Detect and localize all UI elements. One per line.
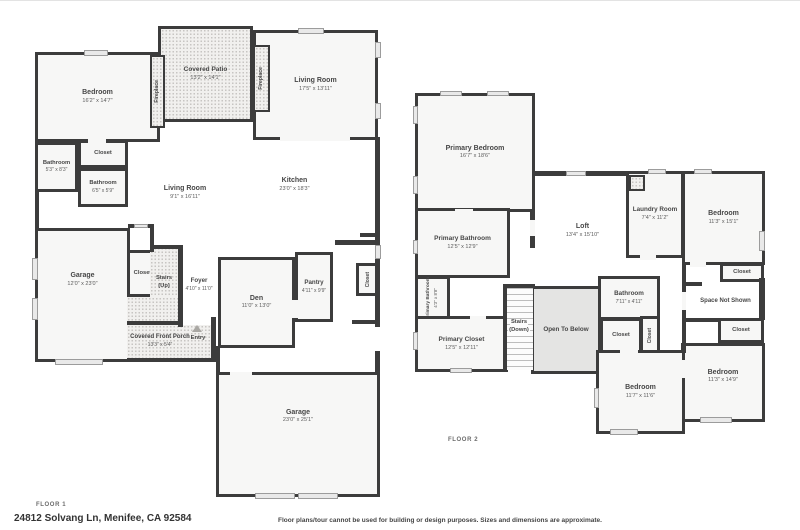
room-label: Bathroom 6'5" x 5'9" [81,171,125,204]
room-dims: 11'3" x 15'1" [709,219,739,227]
door-opening [681,360,686,378]
room-space-not-shown: Space Not Shown [688,295,763,307]
room-label: Bathroom 5'3" x 8'3" [38,145,75,189]
room-name: Bedroom [625,383,656,392]
window [298,28,324,34]
room-primary-bathroom-2: Primary Bathroom 4'3" x 8'8" [415,276,450,320]
room-label: Living Room 17'5" x 13'11" [256,33,375,137]
room-dims: 16'7" x 18'6" [460,153,490,161]
garage-door [255,493,295,499]
door-opening [455,209,473,214]
room-bedroom-se: Bedroom 11'3" x 14'9" [681,343,765,422]
wall [335,240,377,245]
room-name: Bedroom [82,88,113,97]
room-dims: 9'1" x 16'11" [170,194,200,202]
room-label: Closet [643,319,657,352]
room-label: Bedroom 11'3" x 14'9" [684,346,762,419]
room-name: Primary Bathroom [426,277,432,319]
room-label: Closet [603,321,639,351]
room-closet-ne: Closet [720,263,764,282]
room-bedroom-ne: Bedroom 11'3" x 15'1" [682,171,765,265]
room-dims: 16'2" x 14'7" [82,98,112,106]
door-opening [470,316,486,321]
room-label: Closet [721,321,761,340]
room-dims: 7'11" x 4'11" [616,299,643,306]
room-dims: 4'11" x 9'9" [302,288,326,295]
wall [684,282,702,286]
room-name: Bedroom [708,209,739,218]
room-dims: 17'5" x 13'11" [299,86,332,94]
room-name: Bathroom [89,180,116,188]
window [32,258,38,280]
wall [503,284,535,288]
room-dims: 12'5" x 12'11" [445,345,478,353]
room-name: Primary Bathroom [434,235,491,244]
wall [127,358,214,362]
room-dims: 12'0" x 23'0" [67,281,97,289]
door-opening [682,292,686,310]
window [610,429,638,435]
bottom-border-line [0,0,800,1]
room-label: Garage 12'0" x 23'0" [38,231,127,359]
room-kitchen: Kitchen 23'0" x 18'3" [252,172,337,198]
room-name: Closet [94,150,112,158]
open-to-below: Open To Below [531,286,601,374]
room-name: Laundry Room [633,206,677,215]
laundry-fixture [629,175,645,191]
room-sub: (Down) [508,327,530,335]
room-foyer: Foyer 4'10" x 11'0" [180,274,218,296]
room-label: Primary Bathroom 12'5" x 12'9" [418,211,507,275]
wall [127,321,182,325]
window [759,231,765,251]
window [487,91,509,96]
door-opening [375,327,381,351]
room-name: Garage [70,271,94,280]
room-living-room-front: Living Room 17'5" x 13'11" [253,30,378,140]
room-name: Loft [576,222,589,231]
window [700,417,732,423]
window [440,91,462,96]
room-dims: 7'4" x 11'2" [642,215,669,223]
room-dims: 4'10" x 11'0" [185,286,212,293]
door-opening [280,134,350,141]
room-name: Closet [365,272,372,287]
disclaimer-text: Floor plans/tour cannot be used for buil… [278,517,602,524]
room-name: Closet [733,269,751,277]
room-dims: 11'7" x 11'6" [626,393,655,401]
room-stairs-down: Stairs (Down) [504,316,534,338]
window [413,176,418,194]
room-label: Closet [723,266,761,279]
room-name: Space Not Shown [700,297,751,305]
wall [352,320,376,324]
window [648,169,666,174]
room-garage-rear: Garage 23'0" x 25'1" [216,372,380,497]
wall [684,318,718,322]
room-dims: 5'3" x 8'3" [46,167,68,174]
wall [35,190,39,230]
room-bathroom-f2: Bathroom 7'11" x 4'11" [598,276,660,320]
window [375,103,381,119]
room-name: Bathroom [43,160,70,168]
room-primary-bedroom: Primary Bedroom 16'7" x 18'6" [415,93,535,212]
room-label: Pantry 4'11" x 9'9" [298,255,330,319]
room-name: Primary Bedroom [446,144,505,153]
room-name: Closet [732,327,750,335]
door-opening [620,350,638,355]
room-closet-se: Closet [718,318,764,343]
room-name: Fireplace [258,67,265,90]
window [375,42,381,58]
room-garage-side: Garage 12'0" x 23'0" [35,228,130,362]
room-closet-hall-a: Closet [600,318,642,354]
room-name: Pantry [304,279,323,287]
room-closet-hall: Closet [78,140,128,168]
room-bedroom-f1: Bedroom 16'2" x 14'7" [35,52,160,142]
window [450,368,472,373]
room-name: Entry [191,335,206,343]
room-dims: 11'0" x 13'0" [242,303,272,311]
window [84,50,108,56]
room-label: Closet [81,143,125,165]
wall [216,346,220,374]
door-opening [690,262,706,267]
room-covered-patio: Covered Patio 13'2" x 14'1" [158,26,253,122]
room-label: Fireplace [255,47,268,110]
room-dims: 13'3" x 5'4" [148,342,173,349]
room-label: Garage 23'0" x 25'1" [219,375,377,494]
room-sub: (Up) [158,283,170,291]
room-label: Primary Bedroom 16'7" x 18'6" [418,96,532,209]
room-label: Fireplace [152,57,163,126]
room-bathroom-1: Bathroom 5'3" x 8'3" [35,142,78,192]
room-label: Bathroom 7'11" x 4'11" [601,279,657,317]
fireplace-left: Fireplace [150,55,165,128]
window [413,240,418,254]
room-name: Open To Below [543,326,588,335]
room-dims: 6'5" x 5'9" [92,188,114,195]
room-living-room-center: Living Room 9'1" x 16'11" [145,180,225,206]
room-label: Bedroom 11'3" x 15'1" [685,174,762,262]
wall [360,233,376,237]
fireplace-right: Fireplace [253,45,270,112]
door-opening [530,220,535,236]
room-name: Den [250,294,263,303]
room-entry: Entry [184,334,212,344]
room-label: Primary Closet 12'5" x 12'11" [418,319,505,369]
room-primary-closet: Primary Closet 12'5" x 12'11" [415,316,508,372]
door-opening [230,372,252,377]
garage-door [55,359,103,365]
room-name: Bathroom [614,290,644,299]
room-primary-bathroom: Primary Bathroom 12'5" x 12'9" [415,208,510,278]
room-dims: 13'2" x 14'1" [190,75,220,83]
window [566,171,586,176]
room-name: Closet [647,328,654,343]
room-dims: 12'5" x 12'9" [447,244,477,252]
room-label: Covered Patio 13'2" x 14'1" [161,29,250,119]
room-dims: 23'0" x 18'3" [279,186,309,194]
window [32,298,38,320]
room-stairs-up: Stairs (Up) [146,272,182,294]
floorplan-canvas: Bedroom 16'2" x 14'7" Covered Patio 13'2… [0,0,800,530]
room-dims: 11'3" x 14'9" [708,377,738,385]
room-label: Den 11'0" x 13'0" [221,260,292,345]
room-label: Primary Bathroom 4'3" x 8'8" [418,279,447,317]
room-label: Bedroom 16'2" x 14'7" [38,55,157,139]
room-covered-front-porch: Covered Front Porch 13'3" x 5'4" [128,330,192,352]
window [413,106,418,124]
room-bathroom-2: Bathroom 6'5" x 5'9" [78,168,128,207]
room-den: Den 11'0" x 13'0" [218,257,295,348]
room-loft: Loft 13'4" x 15'10" [545,218,620,244]
garage-door [298,493,338,499]
entry-arrow-icon [192,325,202,332]
door-opening [292,300,298,318]
room-name: Fireplace [154,80,161,103]
room-label: Open To Below [534,289,598,371]
window [594,388,599,408]
room-name: Bedroom [708,368,739,377]
room-name: Covered Patio [184,66,228,75]
room-name: Primary Closet [439,336,485,345]
wall [150,224,154,252]
window [134,224,148,228]
room-name: Closet [612,332,630,340]
window [694,169,712,174]
room-label: Bedroom 11'7" x 11'6" [599,353,682,431]
room-name: Garage [286,408,310,417]
room-dims: 23'0" x 25'1" [283,417,313,425]
room-name: Living Room [294,76,336,85]
room-name: Stairs [510,319,528,327]
room-dims: 4'3" x 8'8" [433,288,439,308]
room-name: Stairs [156,275,172,283]
window [413,332,418,350]
room-name: Kitchen [282,176,308,185]
floor1-label: FLOOR 1 [36,502,66,508]
room-name: Living Room [164,184,206,193]
room-name: Foyer [191,277,208,285]
floor2-label: FLOOR 2 [448,437,478,443]
room-pantry: Pantry 4'11" x 9'9" [295,252,333,322]
room-dims: 13'4" x 15'10" [566,232,599,240]
property-address: 24812 Solvang Ln, Menifee, CA 92584 [14,513,191,524]
room-bedroom-s: Bedroom 11'7" x 11'6" [596,350,685,434]
window [375,245,381,259]
door-opening [640,255,656,260]
room-name: Covered Front Porch [130,333,190,341]
door-opening [88,139,106,143]
